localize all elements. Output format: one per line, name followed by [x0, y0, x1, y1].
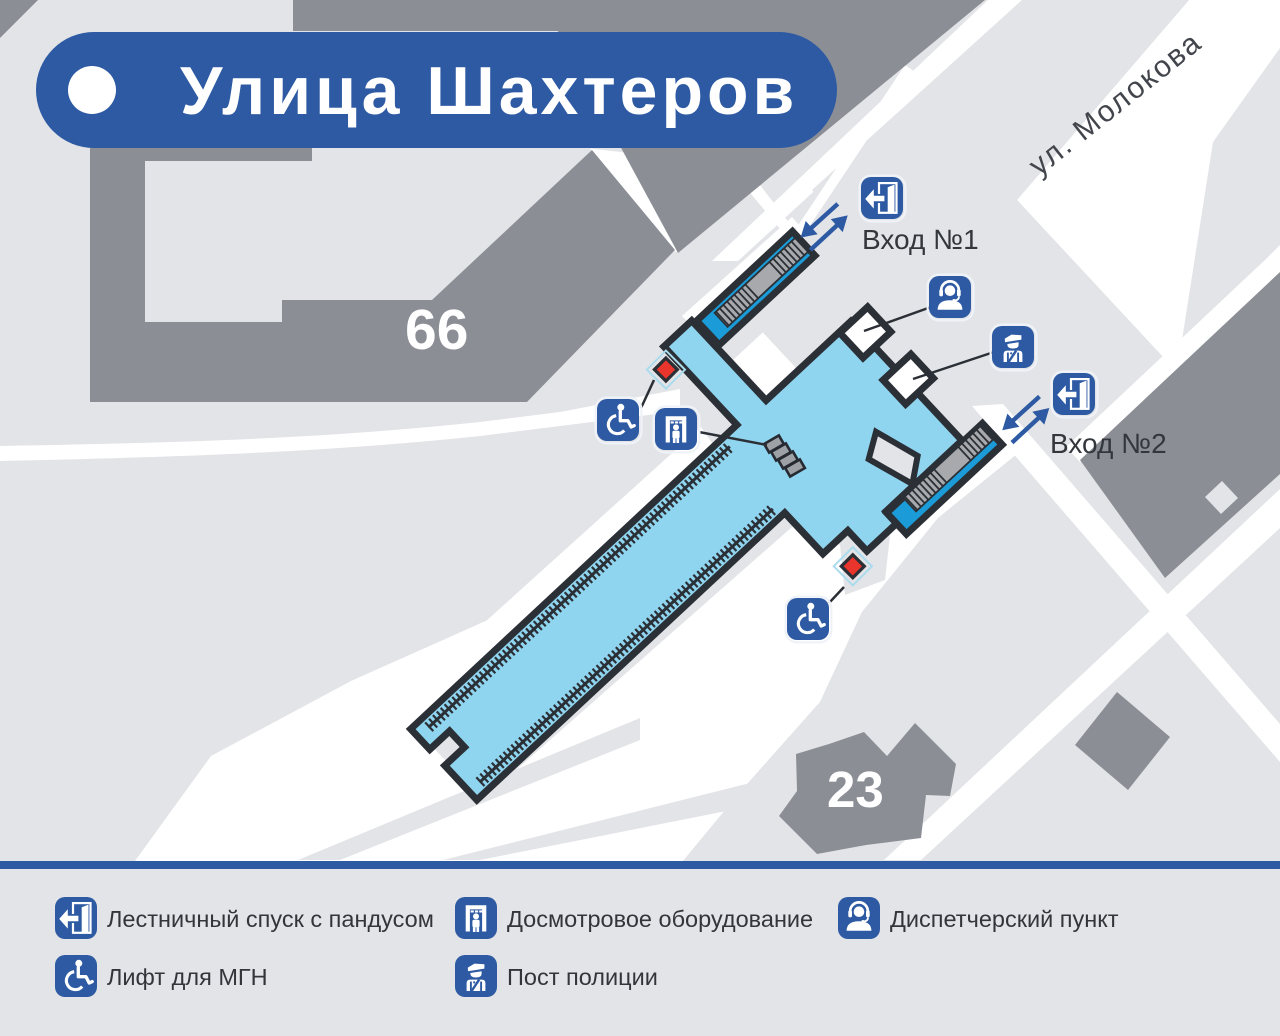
svg-text:23: 23: [827, 761, 884, 818]
svg-text:Досмотровое оборудование: Досмотровое оборудование: [507, 906, 813, 932]
svg-text:Улица Шахтеров: Улица Шахтеров: [180, 53, 798, 129]
svg-text:Лестничный спуск с пандусом: Лестничный спуск с пандусом: [107, 906, 434, 932]
svg-text:66: 66: [405, 298, 468, 362]
svg-text:Лифт для МГН: Лифт для МГН: [107, 964, 268, 990]
svg-text:Вход №2: Вход №2: [1050, 428, 1167, 459]
svg-text:Вход №1: Вход №1: [862, 224, 979, 255]
svg-text:Диспетчерский пункт: Диспетчерский пункт: [890, 906, 1119, 932]
svg-text:Пост полиции: Пост полиции: [507, 964, 658, 990]
